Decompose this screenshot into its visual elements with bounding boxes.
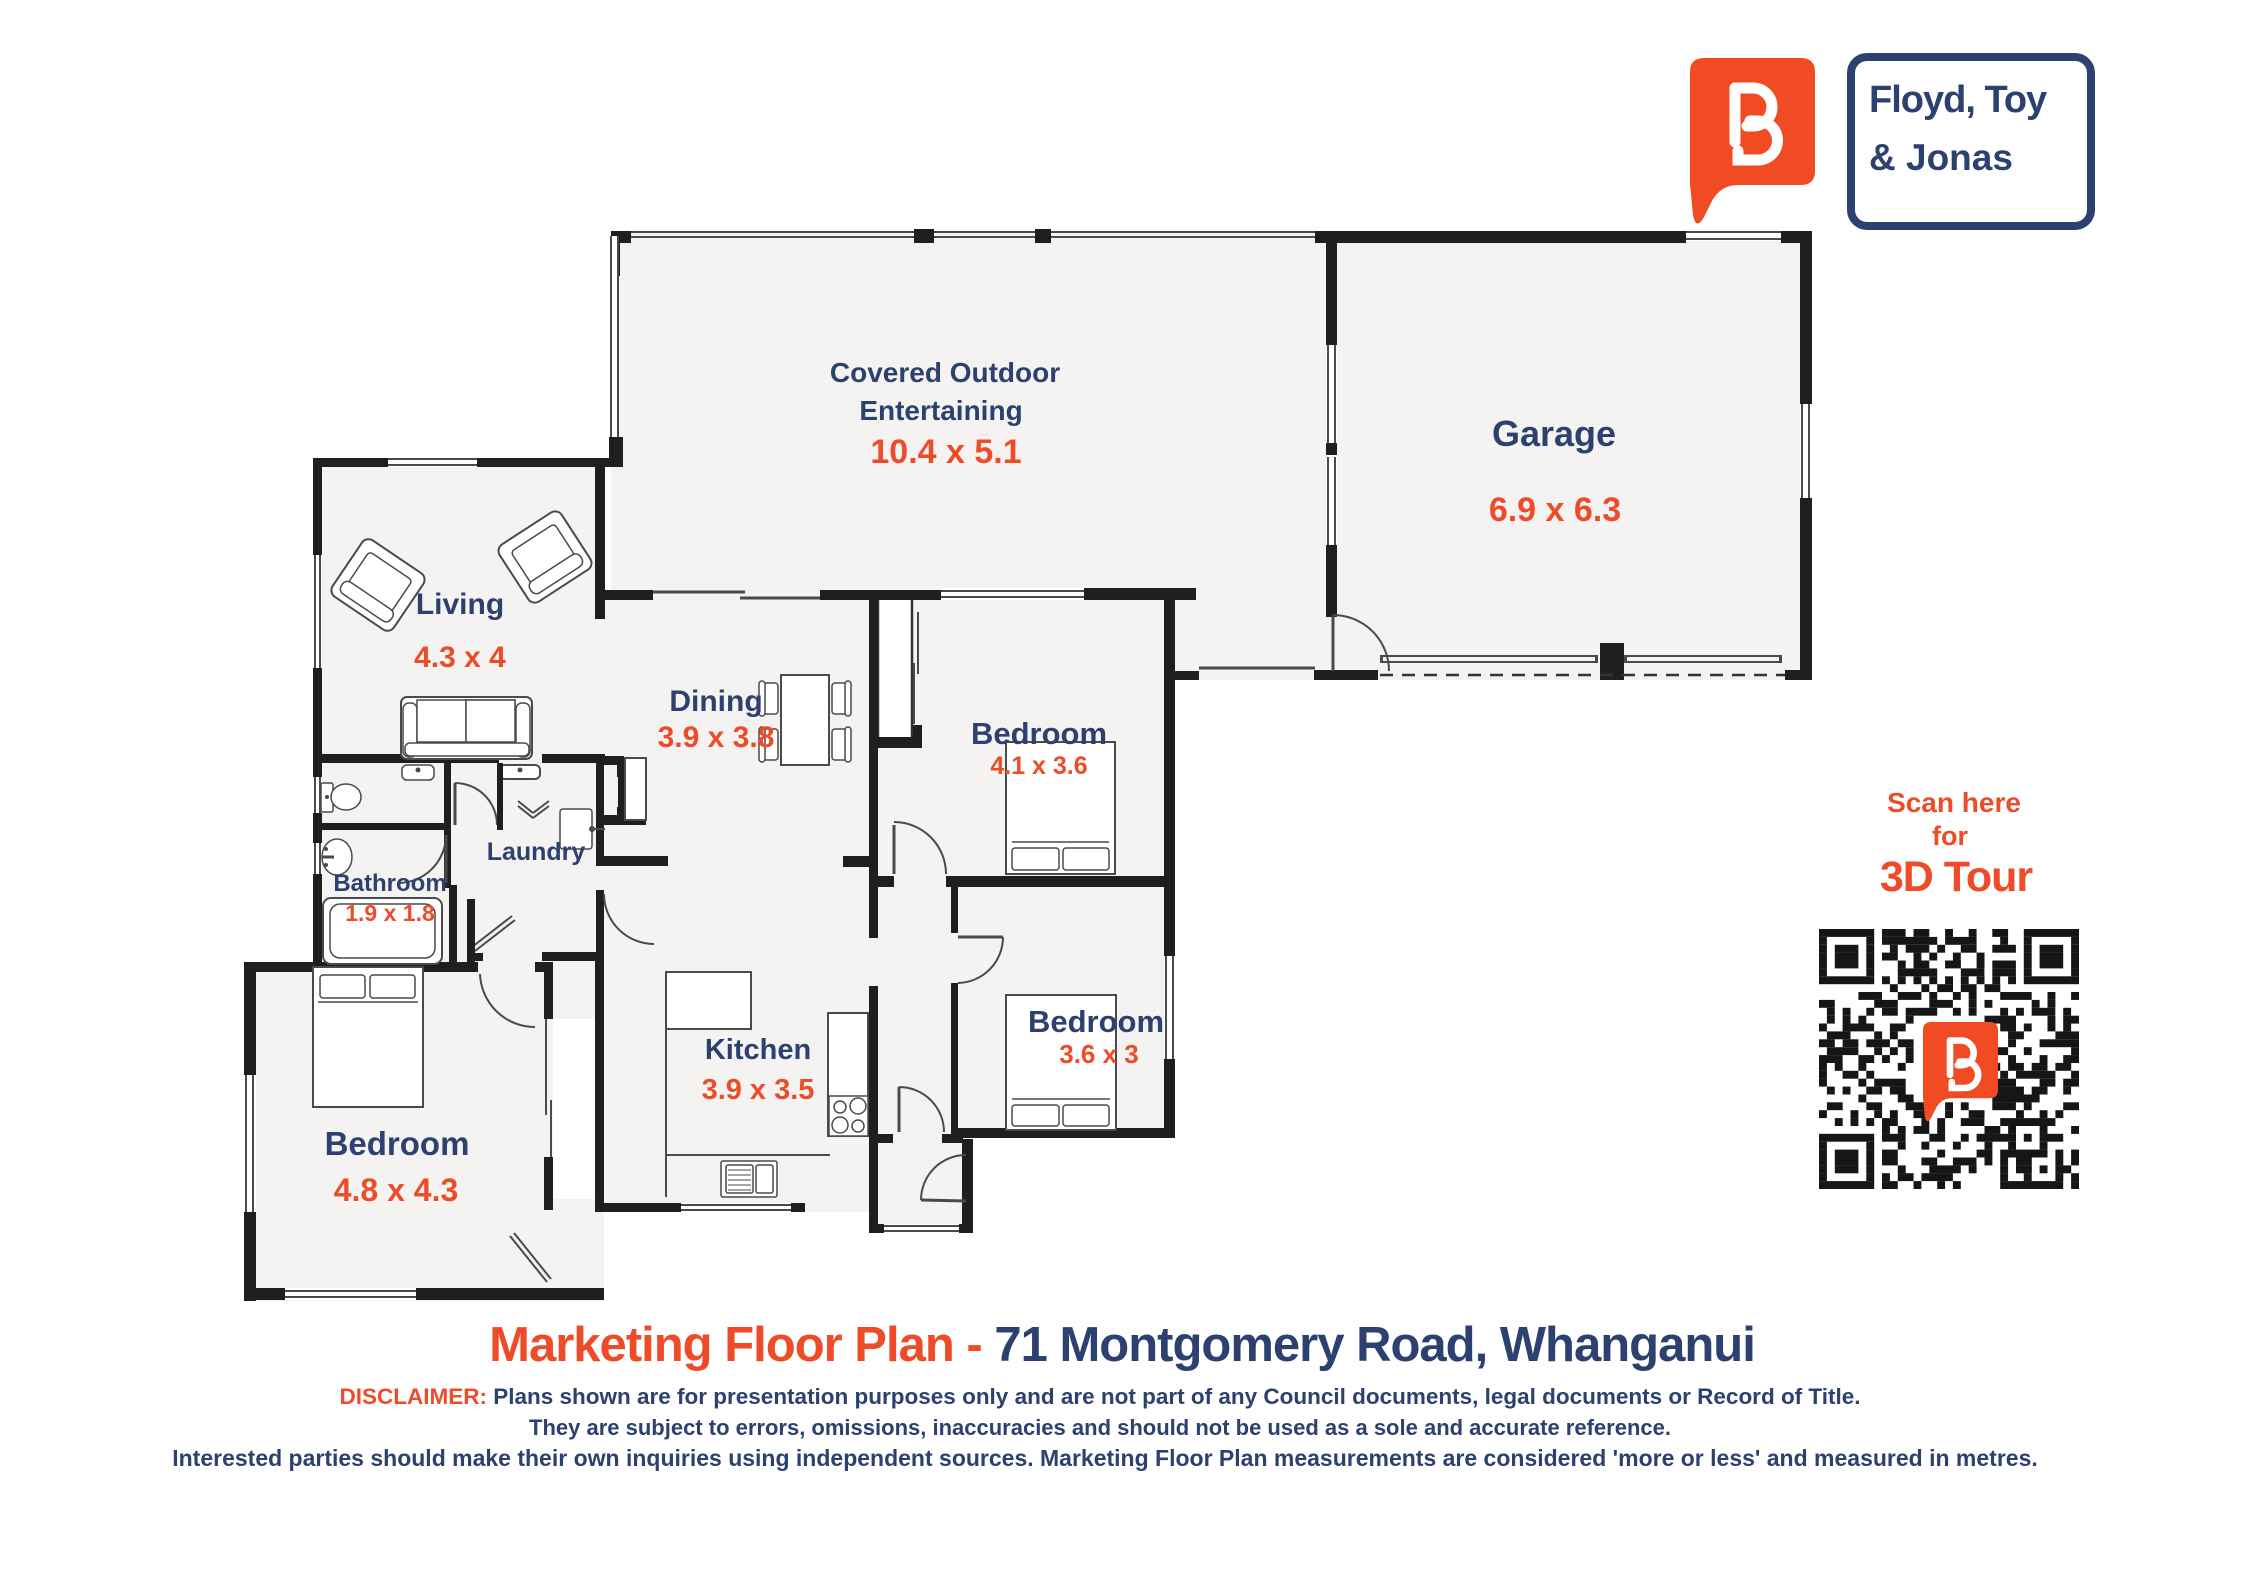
svg-text:Bedroom: Bedroom [971,716,1107,751]
svg-text:4.3 x 4: 4.3 x 4 [414,641,506,674]
svg-text:They are subject to errors, om: They are subject to errors, omissions, i… [529,1415,1671,1440]
svg-text:Bathroom: Bathroom [333,870,446,897]
svg-text:4.1 x 3.6: 4.1 x 3.6 [990,752,1087,780]
svg-text:Dining: Dining [669,685,762,718]
svg-text:for: for [1932,821,1968,851]
svg-text:Covered Outdoor: Covered Outdoor [830,357,1060,388]
svg-text:1.9 x 1.8: 1.9 x 1.8 [345,900,435,926]
svg-text:Laundry: Laundry [487,838,586,866]
svg-text:3D Tour: 3D Tour [1880,853,2034,901]
svg-text:4.8 x 4.3: 4.8 x 4.3 [334,1172,459,1208]
svg-text:Scan here: Scan here [1887,787,2021,818]
svg-text:Entertaining: Entertaining [859,395,1022,426]
svg-text:3.9 x 3.5: 3.9 x 3.5 [702,1074,815,1106]
svg-text:DISCLAIMER: Plans shown are f: DISCLAIMER: Plans shown are for presenta… [339,1384,1860,1409]
svg-text:Bedroom: Bedroom [325,1125,470,1162]
svg-text:Garage: Garage [1492,413,1616,454]
svg-text:Interested parties should make: Interested parties should make their own… [172,1445,2038,1471]
svg-text:3.6 x 3: 3.6 x 3 [1059,1039,1139,1069]
svg-text:6.9 x 6.3: 6.9 x 6.3 [1489,491,1621,529]
svg-text:Living: Living [416,588,504,621]
svg-text:Marketing Floor Plan - 71 Mon: Marketing Floor Plan - 71 Montgomery Roa… [489,1318,1755,1372]
svg-text:10.4 x 5.1: 10.4 x 5.1 [870,433,1021,471]
svg-text:3.9 x 3.8: 3.9 x 3.8 [658,721,775,754]
svg-text:Floyd, Toy: Floyd, Toy [1869,79,2047,121]
svg-text:Kitchen: Kitchen [705,1034,811,1066]
svg-text:& Jonas: & Jonas [1869,137,2013,178]
svg-text:Bedroom: Bedroom [1028,1004,1164,1039]
